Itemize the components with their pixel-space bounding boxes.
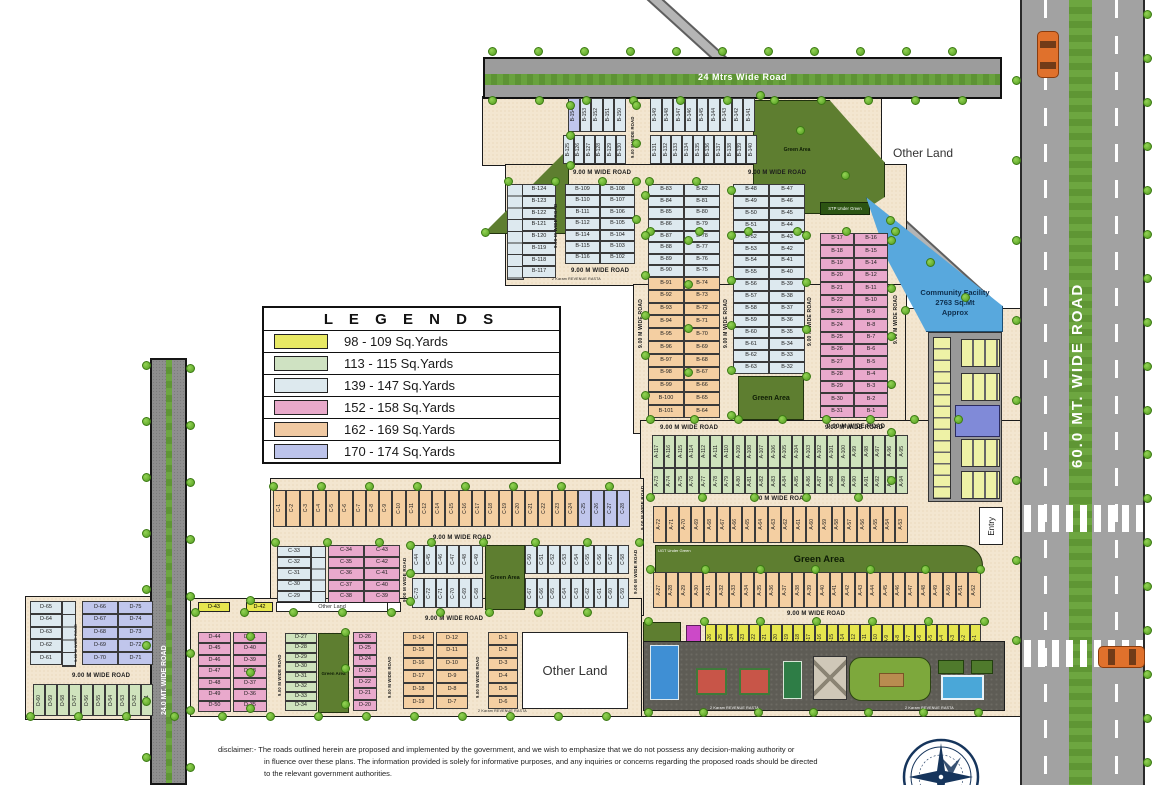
tree-icon [796,126,805,135]
tree-icon [770,96,779,105]
plot-cell: B-60 [733,327,769,339]
plot-cell: B-85 [648,207,684,219]
tree-icon [802,493,811,502]
tree-icon [811,565,820,574]
tree-icon [756,617,765,626]
plot-cell: D-25 [353,643,377,654]
tree-icon [976,565,985,574]
top-road: 24 Mtrs Wide Road [483,57,1002,99]
plot-cell: A-112 [699,435,711,468]
plot-cell: B-141 [743,98,755,132]
facility-shops-group-3 [961,439,1000,467]
plot-cell: B-2 [854,393,888,405]
b-col3-right: B-47B-46B-45B-44B-43B-42B-41B-40B-39B-38… [769,184,805,374]
plot-cell: C-57 [606,545,618,574]
tree-icon [684,236,693,245]
plot-cell: D-23 [353,666,377,677]
plot-cell: C-48 [459,545,471,574]
plot-cell: A-108 [745,435,757,468]
plot-cell: A-58 [832,506,845,543]
plot-cell: B-9 [854,307,888,319]
plot-cell: C-46 [436,545,448,574]
legend-title: L E G E N D S [264,308,559,330]
plot-cell: D-9 [436,670,468,683]
plot-cell: B-47 [769,184,805,196]
tree-icon [240,608,249,617]
tree-icon [1012,316,1021,325]
plot-cell: C-9 [379,490,392,527]
plot-cell: B-128 [595,135,606,164]
plot-cell: B-120 [522,231,556,243]
site-plan-canvas: 24 Mtrs Wide Road 60.0 MT. WIDE ROAD 24.… [0,0,1170,785]
plot-cell: D-37 [233,678,267,689]
tree-icon [531,538,540,547]
tree-icon [566,161,575,170]
tree-icon [727,321,736,330]
legend-range: 113 - 115 Sq.Yards [344,356,453,371]
cricket-pitch [879,673,904,687]
legend-row: 152 - 158 Sq.Yards [264,396,559,418]
plot-cell: A-114 [687,435,699,468]
legend-row: 113 - 115 Sq.Yards [264,352,559,374]
tree-icon [269,482,278,491]
tree-icon [632,101,641,110]
tree-icon [266,712,275,721]
plot-cell: B-62 [733,350,769,362]
tree-icon [246,596,255,605]
plot-cell: C-1 [273,490,286,527]
plot-cell: D-5 [488,683,518,696]
tree-icon [1143,362,1152,371]
plot-cell: B-133 [671,135,682,164]
plot-cell: D-10 [436,658,468,671]
plot-cell: A-69 [691,506,704,543]
plot-cell: B-8 [854,319,888,331]
tree-icon [684,324,693,333]
road-label: 9.00 M WIDE ROAD [748,170,806,176]
plot-cell: B-42 [769,243,805,255]
plot-cell: D-30 [285,662,317,672]
plot-cell: C-64 [560,578,572,608]
d-west-pairs-right: D-75D-74D-73D-72D-71 [118,601,153,665]
tree-icon [641,191,650,200]
road-label: 9.00 M WIDE ROAD [640,478,645,530]
tree-icon [886,216,895,225]
tree-icon [1143,54,1152,63]
plot-cell: A-80 [733,468,745,494]
plot-cell: C-50 [525,545,537,574]
d-west-col: D-65D-64D-63D-62D-61 [30,601,62,665]
ugt-label: UGT Under Green [658,548,691,553]
c-strips2-top: C-50C-51C-52C-53C-54C-55C-56C-57C-58 [525,545,629,574]
plot-cell: D-71 [118,652,153,665]
plot-cell: D-49 [198,689,231,700]
plot-cell: C-60 [606,578,618,608]
legend-rows: 98 - 109 Sq.Yards113 - 115 Sq.Yards139 -… [264,330,559,462]
plot-cell: A-103 [803,435,815,468]
tree-icon [887,332,896,341]
plot-cell: B-40 [769,267,805,279]
plot-cell: C-24 [565,490,578,527]
plot-cell: B-149 [650,98,662,132]
plot-cell: D-43 [208,604,220,610]
tree-icon [534,608,543,617]
tree-icon [632,177,641,186]
tree-icon [246,668,255,677]
plot-cell: B-20 [820,270,854,282]
plot-cell: D-70 [82,652,118,665]
plot-cell: C-62 [583,578,595,608]
tree-icon [646,415,655,424]
plot-cell: B-131 [650,135,661,164]
plot-cell: A-92 [873,468,885,494]
plot-cell: A-83 [768,468,780,494]
plot-cell: B-103 [600,241,635,252]
tree-icon [1143,142,1152,151]
plot-cell: A-117 [652,435,664,468]
plot-cell: B-35 [769,327,805,339]
road-label: 9.00 M WIDE ROAD [807,290,813,346]
plot-cell: B-46 [769,196,805,208]
plot-cell: A-47 [905,572,918,608]
plot-cell: C-41 [364,568,400,580]
tree-icon [566,131,575,140]
c-strips2-bottom: C-67C-66C-65C-64C-63C-62C-61C-60C-59 [525,578,629,608]
tree-icon [635,538,644,547]
plot-cell: A-56 [857,506,870,543]
plot-cell: B-110 [565,195,600,206]
plot-cell: B-129 [605,135,616,164]
plot-cell: B-33 [769,350,805,362]
tree-icon [1143,98,1152,107]
tree-icon [810,47,819,56]
b-col4-left: B-17B-18B-19B-20B-21B-22B-23B-24B-25B-26… [820,233,854,418]
plot-cell: C-55 [583,545,595,574]
plot-cell: B-102 [600,253,635,264]
plot-cell: B-132 [661,135,672,164]
plot-cell: A-34 [741,572,754,608]
plot-cell: A-29 [678,572,691,608]
plot-cell: A-71 [666,506,679,543]
plot-cell: C-52 [548,545,560,574]
tree-icon [341,628,350,637]
plot-cell: D-3 [488,658,518,671]
plot-cell: B-5 [854,356,888,368]
plot-cell: A-35 [754,572,767,608]
entry-label: Entry [987,517,996,536]
plot-cell: A-105 [780,435,792,468]
plot-cell: B-30 [820,393,854,405]
plot-cell: B-89 [648,254,684,266]
tree-icon [802,278,811,287]
plot-cell: C-21 [525,490,538,527]
road-label: 9.00 M WIDE ROAD [630,106,635,158]
plot-cell: D-75 [118,601,153,614]
road-label: 9.00 M WIDE ROAD [387,646,392,698]
plot-cell: B-137 [714,135,725,164]
plot-cell: B-121 [522,219,556,231]
legend-swatch [274,422,328,437]
plot-cell: A-101 [827,435,839,468]
right-road-crosswalk-1 [1024,505,1143,532]
plot-cell: B-18 [820,245,854,257]
plot-cell: A-53 [895,506,908,543]
plot-cell: C-58 [618,545,630,574]
plot-cell: D-28 [285,643,317,653]
c-top-row-peach: C-1C-2C-3C-4C-5C-6C-7C-8C-9C-10C-11C-12C… [273,490,578,527]
tree-icon [727,186,736,195]
plot-cell: C-27 [604,490,617,527]
plot-cell: C-6 [339,490,352,527]
plot-cell: A-36 [766,572,779,608]
plot-cell: A-90 [850,468,862,494]
plot-cell: D-63 [30,627,62,640]
plot-cell: D-36 [233,689,267,700]
tree-icon [632,215,641,224]
plot-cell: B-84 [648,196,684,208]
d-green-col: D-27D-28D-29D-30D-31D-32D-33D-34 [285,633,317,711]
plot-cell: B-112 [565,218,600,229]
plot-cell: B-4 [854,369,888,381]
legend-row: 162 - 169 Sq.Yards [264,418,559,440]
plot-cell: D-18 [403,683,434,696]
facility-shops-group-4 [961,471,1000,499]
plot-cell: B-81 [684,196,720,208]
legend-row: 170 - 174 Sq.Yards [264,440,559,462]
tree-icon [387,608,396,617]
plot-cell: A-99 [850,435,862,468]
plot-cell: C-28 [617,490,630,527]
tree-icon [191,608,200,617]
tree-icon [699,708,708,717]
plot-cell: D-67 [82,614,118,627]
plot-cell: D-56 [81,684,93,716]
tree-icon [410,712,419,721]
plot-cell: C-34 [328,545,364,557]
plot-cell: C-35 [328,557,364,569]
c-top-row-lavender: C-25C-26C-27C-28 [578,490,630,527]
plot-cell: B-139 [736,135,747,164]
tree-icon [684,368,693,377]
plot-cell: C-17 [472,490,485,527]
legend-range: 162 - 169 Sq.Yards [344,422,455,437]
plot-cell: B-148 [662,98,674,132]
plot-cell: D-52 [129,684,141,716]
plot-cell: D-31 [285,672,317,682]
plot-cell: B-19 [820,258,854,270]
plot-cell: D-46 [198,655,231,666]
plot-cell: A-55 [870,506,883,543]
tree-icon [924,617,933,626]
tree-icon [1143,406,1152,415]
plot-cell: C-15 [445,490,458,527]
top-road-label: 24 Mtrs Wide Road [485,72,1000,82]
plot-cell: B-39 [769,279,805,291]
plot-cell: D-1 [488,632,518,645]
d-peach-col: D-1D-2D-3D-4D-5D-6 [488,632,518,709]
plot-cell: B-11 [854,282,888,294]
plot-cell: C-37 [328,580,364,592]
plot-cell: B-106 [600,207,635,218]
plot-cell: A-91 [862,468,874,494]
plot-cell: A-63 [768,506,781,543]
road-label: 9.00 M WIDE ROAD [660,425,718,431]
tree-icon [817,96,826,105]
plot-cell: A-84 [780,468,792,494]
plot-cell: C-42 [364,557,400,569]
road-label: 9.00 M WIDE ROAD [475,646,480,698]
plot-cell: D-39 [233,655,267,666]
plot-cell: D-24 [353,655,377,666]
plot-cell: A-104 [792,435,804,468]
tree-icon [186,592,195,601]
plot-cell: A-70 [679,506,692,543]
tree-icon [641,351,650,360]
tree-icon [534,47,543,56]
road-label: 9.00 M WIDE ROAD [750,496,808,502]
plot-cell: D-20 [353,700,377,711]
tree-icon [764,47,773,56]
plot-cell: C-23 [552,490,565,527]
b-row1-right: B-149B-148B-147B-146B-145B-144B-143B-142… [650,98,755,132]
plot-cell: D-34 [285,701,317,711]
plot-cell: C-8 [366,490,379,527]
plot-cell: B-76 [684,254,720,266]
road-label: 9.00 M WIDE ROAD [277,644,282,696]
plot-cell: D-68 [82,627,118,640]
tree-icon [887,428,896,437]
tree-icon [1143,230,1152,239]
plot-cell: D-69 [82,639,118,652]
tree-icon [646,493,655,502]
car-icon [1037,31,1059,78]
plot-cell: A-82 [757,468,769,494]
plot-cell: B-83 [648,184,684,196]
tree-icon [692,177,701,186]
tree-icon [365,482,374,491]
plot-cell: C-47 [447,545,459,574]
plot-cell: A-74 [664,468,676,494]
tree-icon [509,482,518,491]
plot-cell: A-88 [827,468,839,494]
tree-icon [756,565,765,574]
plot-cell: B-142 [732,98,744,132]
tree-icon [974,708,983,717]
plot-cell: C-53 [560,545,572,574]
green-area-label: Green Area [752,395,789,402]
plot-cell: A-107 [757,435,769,468]
plot-cell: A-40 [817,572,830,608]
tree-icon [26,712,35,721]
tree-icon [1143,670,1152,679]
plot-cell: A-75 [675,468,687,494]
plot-cell: C-36 [328,568,364,580]
plot-cell: B-118 [522,255,556,267]
tree-icon [142,641,151,650]
plot-cell: A-72 [653,506,666,543]
tree-icon [436,608,445,617]
plot-cell: C-61 [594,578,606,608]
plot-cell: B-108 [600,184,635,195]
tree-icon [142,753,151,762]
plot-cell: C-2 [286,490,299,527]
plot-cell: D-15 [403,645,434,658]
plot-cell: D-16 [403,658,434,671]
community-facility-line1: Community Facility [908,288,1002,298]
plot-cell: B-50 [733,208,769,220]
plot-cell: B-64 [684,405,720,418]
road-label: 9.00 M WIDE ROAD [425,616,483,622]
tree-icon [580,47,589,56]
tree-icon [598,177,607,186]
tree-icon [186,649,195,658]
plot-cell: A-116 [664,435,676,468]
tree-icon [727,366,736,375]
tree-icon [701,565,710,574]
plot-cell: D-22 [353,677,377,688]
plot-cell: B-104 [600,230,635,241]
tree-icon [535,96,544,105]
tree-icon [698,493,707,502]
tree-icon [645,177,654,186]
tree-icon [1143,714,1152,723]
tree-icon [641,391,650,400]
tree-icon [626,47,635,56]
plot-cell: B-72 [684,303,720,316]
tree-icon [902,47,911,56]
plot-cell: B-45 [769,208,805,220]
plot-cell: B-25 [820,332,854,344]
tree-icon [644,617,653,626]
tree-icon [1143,186,1152,195]
tree-icon [289,608,298,617]
plot-cell: B-68 [684,354,720,367]
tree-icon [1012,156,1021,165]
tree-icon [690,415,699,424]
plot-cell: C-3 [300,490,313,527]
tree-icon [461,482,470,491]
tree-icon [695,227,704,236]
plot-cell: D-73 [118,627,153,640]
plot-cell: A-85 [792,468,804,494]
plot-cell: C-45 [424,545,436,574]
tree-icon [314,712,323,721]
plot-cell: B-37 [769,303,805,315]
b-col-outer: B-124B-123B-122B-121B-120B-119B-118B-117 [522,184,556,278]
tree-icon [684,280,693,289]
tree-icon [122,712,131,721]
tree-icon [641,271,650,280]
legend-row: 98 - 109 Sq.Yards [264,330,559,352]
tree-icon [74,712,83,721]
road-label: 9.00 M WIDE ROAD [72,673,130,679]
plot-cell: A-64 [755,506,768,543]
tree-icon [142,585,151,594]
plot-cell: B-65 [684,392,720,405]
plot-cell: A-59 [819,506,832,543]
entry-gate: Entry [979,507,1003,545]
right-road-label: 60.0 MT. WIDE ROAD [1069,255,1092,495]
plot-cell: A-43 [855,572,868,608]
plot-cell: B-36 [769,315,805,327]
plot-cell: A-97 [873,435,885,468]
plot-cell: A-89 [838,468,850,494]
tree-icon [1012,556,1021,565]
tree-icon [854,493,863,502]
tree-icon [887,236,896,245]
plot-cell: B-130 [616,135,627,164]
plot-cell: A-33 [729,572,742,608]
